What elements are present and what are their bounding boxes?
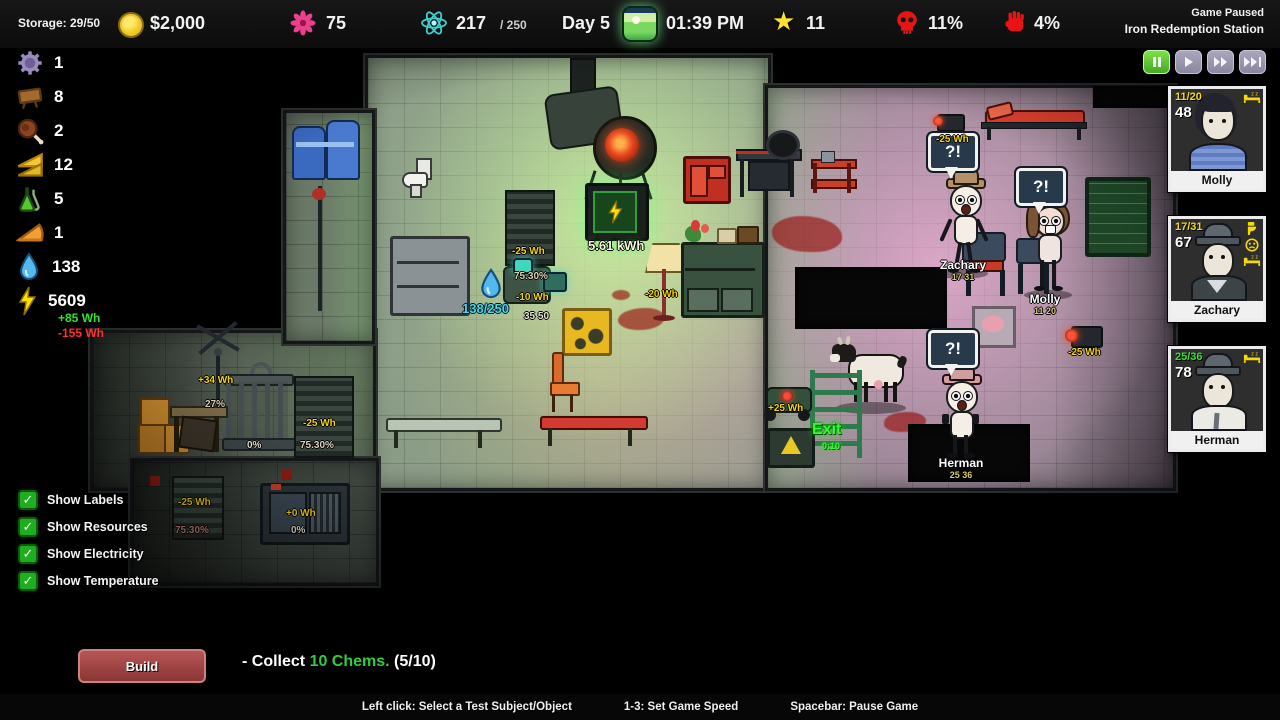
fast-forward-icon (1221, 57, 1227, 67)
table-leg (740, 159, 744, 197)
death-pct: 11% (928, 13, 963, 34)
security-camera[interactable] (1063, 320, 1103, 350)
pause-button[interactable] (1143, 50, 1170, 74)
flower-value: 75 (326, 13, 346, 34)
table-leg (790, 159, 794, 197)
fast-forward-icon (1214, 57, 1220, 67)
crew-card-herman[interactable]: 25/36 78 z z Herman (1168, 346, 1266, 452)
portrait-eye (1221, 385, 1225, 389)
leg (964, 435, 968, 455)
crew-name: Molly (1171, 171, 1263, 189)
toggle-label: Show Labels (47, 493, 123, 507)
toggle-label: Show Temperature (47, 574, 159, 588)
workbench-drawer (708, 165, 726, 179)
pole-cap (312, 188, 326, 200)
unhappy-face-icon (1245, 238, 1259, 252)
blood-stain (612, 290, 630, 300)
top-bar: Storage: 29/50 $2,000 75 217 / 250 Day 5… (0, 0, 1280, 49)
crew-score: 78 (1175, 364, 1192, 381)
mouth (957, 400, 967, 411)
map-character-stats: 17 31 (918, 272, 1008, 282)
leg (953, 435, 957, 455)
portrait-eye (1222, 119, 1226, 123)
shelf-jar (717, 228, 737, 244)
foot (1052, 286, 1063, 291)
water-level-indicator (478, 266, 504, 304)
gray-cabinet[interactable] (390, 236, 470, 316)
crew-score: 48 (1175, 104, 1192, 121)
speed-controls (1143, 50, 1266, 74)
red-workbench[interactable] (683, 156, 731, 204)
shelf-box (737, 226, 759, 244)
shelf-power-label: -25 Wh (512, 246, 545, 257)
bench-leg (394, 430, 398, 448)
robot-red-eye (605, 128, 639, 162)
toggle-show-temperature[interactable]: Show Temperature (18, 570, 159, 592)
locker-power-label: -25 Wh (303, 418, 336, 429)
wood-icon (16, 83, 44, 111)
fast-forward-button[interactable] (1207, 50, 1234, 74)
clock-time: 01:39 PM (666, 13, 744, 34)
unrest-fist-icon (1004, 9, 1028, 40)
arm (939, 218, 952, 242)
sleep-icon: z z (1243, 351, 1261, 364)
chems-icon (16, 185, 44, 213)
wall-tire[interactable] (766, 130, 800, 160)
speech-text: ?! (1033, 177, 1049, 197)
cabinet-line (397, 285, 459, 288)
plant-shelf[interactable] (681, 224, 759, 312)
checkbox-checked-icon[interactable] (18, 490, 38, 510)
ceiling-robot[interactable] (545, 58, 665, 203)
portrait-shirt (1189, 143, 1247, 171)
hazard-triangle-icon (781, 436, 801, 454)
pig-shape (982, 316, 1004, 332)
battery-panel[interactable] (585, 183, 649, 241)
max-speed-icon (1251, 57, 1257, 67)
character-herman[interactable] (936, 362, 986, 460)
exit-timer: 0:10 (822, 441, 840, 451)
water-drop-icon (478, 266, 504, 302)
turbine-power-label: +34 Wh (198, 375, 233, 386)
checkbox-checked-icon[interactable] (18, 544, 38, 564)
pole-shaft (318, 186, 322, 311)
resource-value: 1 (54, 223, 63, 243)
objective-text: - Collect 10 Chems. (5/10) (242, 653, 436, 671)
speech-bubble: ?! (1016, 168, 1066, 206)
tank (292, 126, 326, 180)
machine-parts-icon (16, 49, 44, 77)
crew-status-icons: z z (1243, 351, 1261, 364)
wall-vent (1093, 86, 1167, 108)
orange-chair[interactable] (548, 352, 578, 414)
storage-counter: Storage: 29/50 (18, 16, 100, 30)
objective-progress: (5/10) (390, 653, 436, 670)
crew-capacity: 25/36 (1175, 351, 1203, 363)
security-camera[interactable] (933, 110, 963, 132)
cage-bars (226, 382, 288, 440)
leg (1040, 260, 1044, 288)
objective-target: 10 Chems. (310, 653, 390, 670)
lightning-icon (607, 199, 623, 225)
checkbox-checked-icon[interactable] (18, 517, 38, 537)
toggle-label: Show Electricity (47, 547, 144, 561)
resource-chems: 5 (16, 183, 63, 215)
resource-meat: 2 (16, 115, 63, 147)
max-speed-icon (1244, 57, 1250, 67)
crew-card-zachary[interactable]: 17/31 67 z z Zachary (1168, 216, 1266, 322)
chair-leg (552, 394, 555, 412)
game-screen: { "top_bar": { "storage": "Storage: 29/5… (0, 0, 1280, 720)
resource-value: 1 (54, 53, 63, 73)
resource-sandwich: 12 (16, 149, 73, 181)
crew-status-icons: z z (1243, 221, 1261, 267)
build-button[interactable]: Build (78, 649, 206, 683)
bench-leg (548, 428, 552, 446)
mouth (961, 204, 971, 215)
unrest-pct: 4% (1034, 13, 1060, 34)
wall-decal (150, 476, 160, 486)
toggle-show-electricity[interactable]: Show Electricity (18, 543, 144, 565)
pie-icon (16, 219, 44, 247)
leg (1052, 260, 1056, 288)
side-table[interactable] (170, 406, 224, 454)
sleep-icon: z z (1243, 91, 1261, 104)
cage-pct-label: 0% (247, 440, 261, 451)
science-max: / 250 (500, 18, 527, 32)
crew-capacity: 11/20 (1175, 91, 1202, 103)
camera-lens (933, 116, 943, 126)
shelf-drawer (687, 288, 719, 312)
map-character-name: Zachary (918, 258, 1008, 272)
battery-charge-label: 5.61 kWh (588, 238, 644, 253)
map-character-name: Molly (1000, 292, 1090, 306)
turbine-pct-label: 27% (205, 399, 225, 410)
console-light (271, 484, 281, 490)
resource-value: 138 (52, 257, 80, 277)
plant-flower (691, 220, 700, 231)
exit-sign[interactable]: Exit (812, 421, 841, 439)
eye (963, 391, 973, 401)
star-icon (772, 6, 795, 37)
resource-machine-parts: 1 (16, 47, 63, 79)
bed-leg (1077, 127, 1081, 140)
day-counter: Day 5 (562, 13, 610, 34)
red-shelf[interactable] (811, 159, 853, 196)
wall-decal (282, 470, 292, 480)
sleep-icon: z z (1243, 254, 1261, 267)
mouth-grimace (1045, 225, 1056, 234)
max-speed-button[interactable] (1239, 50, 1266, 74)
head (950, 185, 982, 217)
help-speed: 1-3: Set Game Speed (624, 701, 738, 713)
tank-band (296, 142, 354, 147)
play-button[interactable] (1175, 50, 1202, 74)
shelf-divider (685, 268, 755, 271)
help-bar: Left click: Select a Test Subject/Object… (0, 694, 1280, 720)
console-pct-label: 0% (291, 525, 305, 536)
pause-icon (1153, 57, 1156, 67)
basement-power-label: -25 Wh (178, 497, 211, 508)
resource-value: 5609 (48, 291, 86, 311)
sandwich-icon (16, 151, 44, 179)
crate (140, 398, 170, 426)
resource-value: 5 (54, 189, 63, 209)
lamp-power-label: -20 Wh (645, 289, 678, 300)
character-molly[interactable] (1024, 198, 1072, 298)
rover-light (781, 391, 793, 401)
resource-water: 138 (16, 251, 80, 283)
turbine-hub (214, 348, 222, 356)
bed-frame (981, 122, 1087, 129)
crew-score: 67 (1175, 234, 1192, 251)
hand (942, 414, 949, 424)
hazard-panel[interactable] (767, 428, 815, 468)
locker-pct-label: 75.30% (300, 440, 334, 451)
speech-text: ?! (945, 339, 961, 359)
purifier-power-label: -10 Wh (516, 292, 549, 303)
rover-power-label: +25 Wh (768, 403, 803, 414)
resource-value: 2 (54, 121, 63, 141)
science-current: 217 (456, 13, 486, 34)
toggle-show-resources[interactable]: Show Resources (18, 516, 148, 538)
cabinet-line (397, 261, 459, 264)
crew-card-molly[interactable]: 11/20 48 z z Molly (1168, 86, 1266, 192)
portrait-head (1202, 243, 1234, 279)
resource-value: 12 (54, 155, 73, 175)
eye (967, 195, 977, 205)
map-character-stats: 11 20 (1000, 306, 1090, 316)
death-skull-icon (894, 9, 920, 40)
toilet-base (410, 184, 422, 198)
foot (1034, 286, 1045, 291)
resource-wood: 8 (16, 81, 63, 113)
shelf-leg (847, 163, 851, 193)
plant-flower (701, 224, 709, 233)
water-icon (16, 252, 42, 282)
portrait-scarf (1207, 280, 1227, 293)
crew-capacity: 17/31 (1175, 221, 1203, 233)
water-level-label: 138/250 (462, 301, 509, 316)
support-pole (316, 186, 324, 311)
money-icon (118, 12, 144, 38)
chalkboard[interactable] (1085, 177, 1151, 257)
camera-power-label: -25 Wh (936, 134, 969, 145)
pause-icon (1158, 57, 1161, 67)
max-speed-bar (1259, 57, 1261, 67)
portrait-eye (1209, 119, 1213, 123)
toilet-icon (1246, 221, 1259, 236)
daytime-icon (622, 6, 658, 42)
power-drain: -155 Wh (58, 326, 104, 340)
camera-power-label: -25 Wh (1068, 347, 1101, 358)
workbench-door (690, 165, 708, 197)
bench-leg (628, 428, 632, 446)
portrait-eye (1209, 385, 1213, 389)
toggle-label: Show Resources (47, 520, 148, 534)
help-pause: Spacebar: Pause Game (790, 701, 918, 713)
console-power-label: +0 Wh (286, 508, 316, 519)
toggle-show-labels[interactable]: Show Labels (18, 489, 123, 511)
camera-lens (1065, 329, 1078, 342)
money-value: $2,000 (150, 13, 205, 34)
portrait-head (1202, 373, 1234, 409)
speech-bubble: ?! (928, 330, 978, 368)
help-select: Left click: Select a Test Subject/Object (362, 701, 572, 713)
chair-leg (1018, 264, 1023, 294)
map-character-stats: 25 36 (916, 470, 1006, 480)
checkbox-checked-icon[interactable] (18, 571, 38, 591)
torso (954, 215, 978, 245)
power-gain: +85 Wh (58, 311, 100, 325)
sun-dot (632, 16, 640, 24)
table-shelf (748, 161, 790, 191)
shelf-drawer (721, 288, 753, 312)
chair-leg (570, 394, 573, 412)
portrait-fringe (1201, 97, 1234, 112)
goat-leg (864, 382, 868, 402)
portrait-eye (1209, 255, 1213, 259)
station-name: Iron Redemption Station (1125, 22, 1264, 36)
red-bed[interactable] (985, 110, 1085, 140)
svg-text:z z: z z (1251, 255, 1258, 261)
science-icon (420, 9, 448, 42)
bench[interactable] (386, 418, 502, 432)
play-icon (1185, 57, 1193, 67)
crew-name: Herman (1171, 431, 1263, 449)
head (946, 381, 978, 413)
goat-snout (830, 354, 840, 362)
star-value: 11 (806, 13, 825, 34)
game-status: Game Paused (1191, 7, 1264, 19)
lamp-base (653, 315, 675, 321)
water-tanks[interactable] (292, 120, 360, 178)
power-icon (16, 286, 38, 316)
tank (326, 120, 360, 180)
flower-icon (290, 10, 316, 41)
meat-icon (16, 117, 44, 145)
purifier-pct-label: 75.30% (514, 271, 548, 282)
objective-prefix: - Collect (242, 653, 310, 670)
svg-text:z z: z z (1251, 352, 1258, 358)
crew-name: Zachary (1171, 301, 1263, 319)
portrait-eye (1221, 255, 1225, 259)
bench-leg (478, 430, 482, 448)
goat-udder (874, 380, 883, 389)
toilet[interactable] (402, 158, 432, 194)
resource-pie: 1 (16, 217, 63, 249)
basement-pct-label: 75.30% (175, 525, 209, 536)
goat-leg (893, 382, 897, 402)
svg-text:z z: z z (1251, 92, 1258, 98)
bed-leg (987, 127, 991, 140)
map-character-name: Herman (916, 456, 1006, 470)
crate (138, 424, 166, 454)
crew-status-icons: z z (1243, 91, 1261, 104)
resource-value: 8 (54, 87, 63, 107)
scrap-crate[interactable] (562, 308, 612, 356)
shelf-leg (813, 163, 817, 193)
hand (972, 414, 979, 424)
battery-screen (593, 191, 637, 233)
purifier-stats-label: 35 50 (524, 311, 549, 322)
shelf-item (821, 151, 835, 163)
table-clutter (178, 416, 218, 453)
goat-leg (884, 382, 888, 402)
speech-text: ?! (945, 142, 961, 162)
